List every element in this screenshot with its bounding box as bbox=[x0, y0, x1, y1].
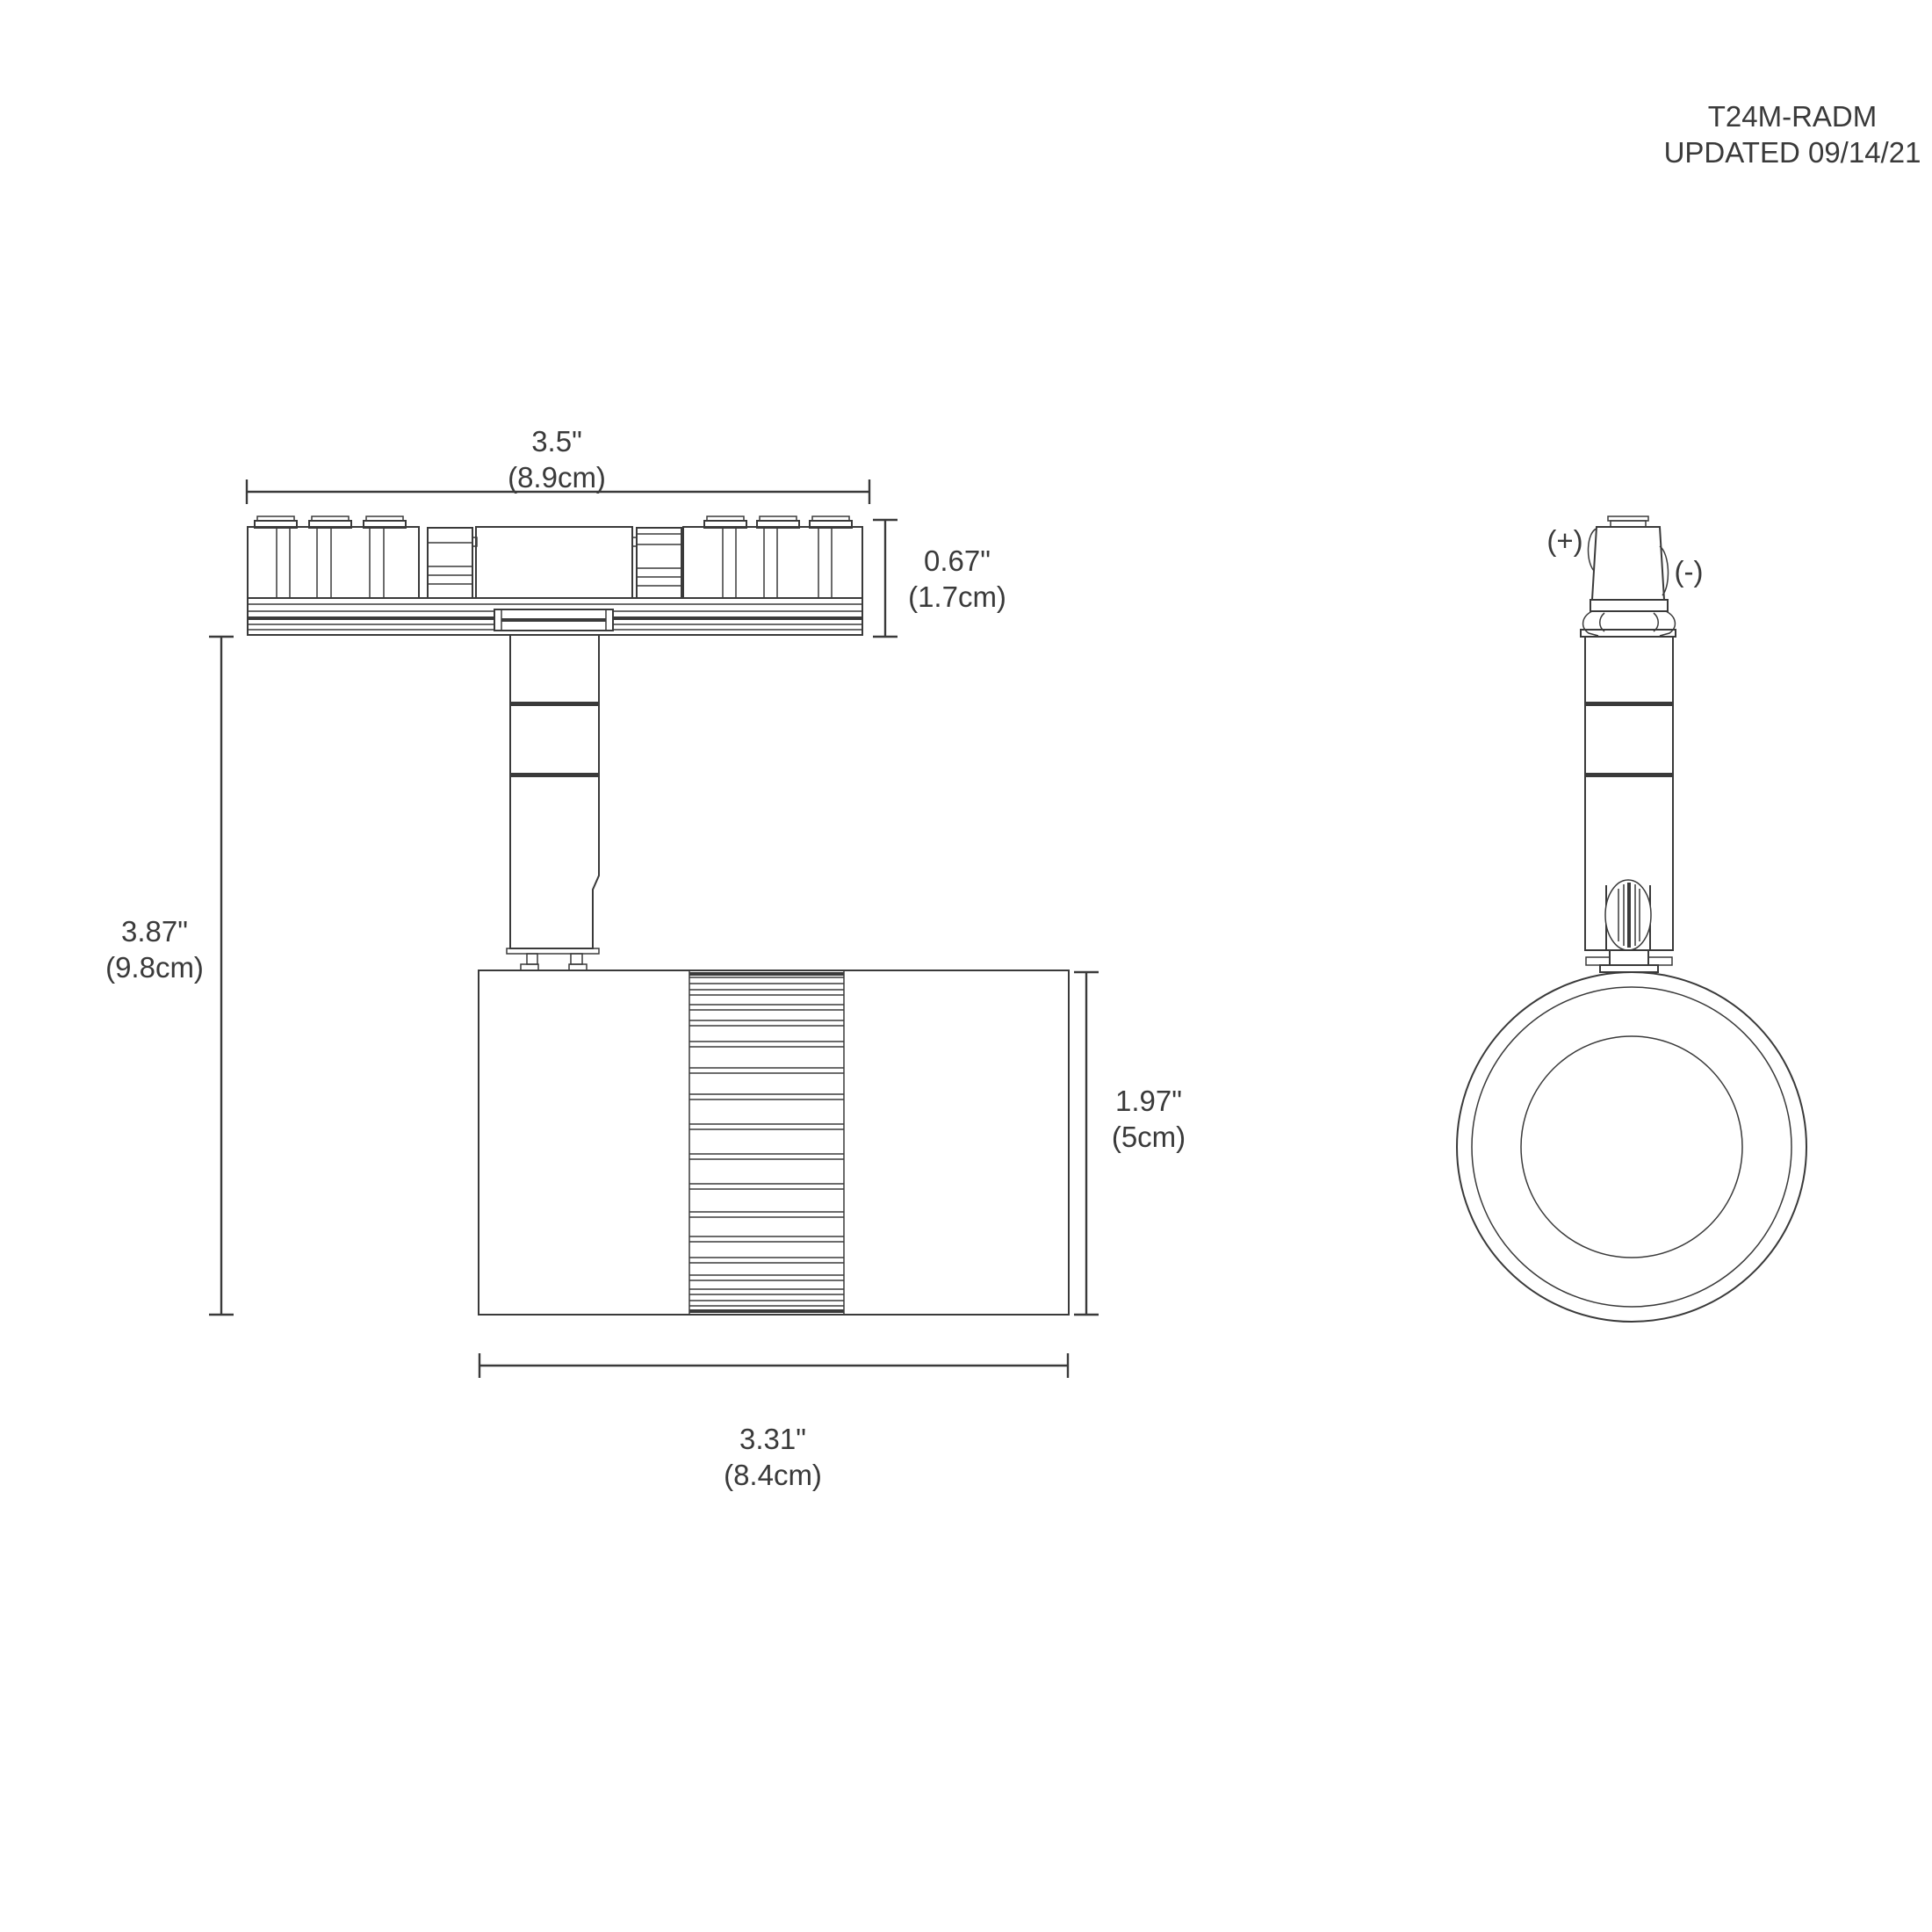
side-track-adapter bbox=[248, 516, 862, 635]
dim-overall-height-label: 3.87" (9.8cm) bbox=[105, 913, 204, 985]
dim-overall-height-line bbox=[209, 637, 234, 1315]
heatsink-fins bbox=[689, 974, 844, 1311]
dim-track-height-label: 0.67" (1.7cm) bbox=[908, 543, 1006, 615]
dim-track-width-label: 3.5" (8.9cm) bbox=[508, 423, 606, 495]
updated-date: UPDATED 09/14/21 bbox=[1664, 134, 1921, 170]
polarity-positive-label: (+) bbox=[1546, 525, 1582, 557]
dim-track-height-line bbox=[873, 520, 898, 637]
track-upper-blocks bbox=[248, 527, 862, 598]
front-track-connector bbox=[1581, 516, 1676, 637]
dim-head-width-label: 3.31" (8.4cm) bbox=[724, 1421, 822, 1493]
spec-sheet: T24M-RADM UPDATED 09/14/21 3.5" (8.9cm) … bbox=[0, 0, 1932, 1932]
dim-inches: 1.97" bbox=[1112, 1083, 1186, 1119]
dim-head-height-line bbox=[1074, 972, 1099, 1315]
dim-inches: 3.5" bbox=[508, 423, 606, 459]
dim-metric: (9.8cm) bbox=[105, 949, 204, 985]
front-yoke bbox=[1586, 950, 1672, 972]
polarity-negative-label: (-) bbox=[1675, 556, 1704, 588]
model-number: T24M-RADM bbox=[1664, 98, 1921, 134]
side-lamp-body bbox=[479, 970, 1069, 1315]
track-bottom-plate bbox=[248, 598, 862, 635]
dim-head-width-line bbox=[479, 1353, 1068, 1378]
track-ladder-right bbox=[632, 528, 681, 598]
front-adjust-knob bbox=[1605, 880, 1651, 950]
dim-head-height-label: 1.97" (5cm) bbox=[1112, 1083, 1186, 1155]
side-stem bbox=[507, 635, 599, 970]
dim-metric: (8.9cm) bbox=[508, 459, 606, 495]
front-view bbox=[1457, 516, 1806, 1322]
dim-metric: (5cm) bbox=[1112, 1119, 1186, 1155]
dim-inches: 3.31" bbox=[724, 1421, 822, 1457]
dim-metric: (8.4cm) bbox=[724, 1457, 822, 1493]
title-block: T24M-RADM UPDATED 09/14/21 bbox=[1664, 98, 1921, 170]
technical-drawing bbox=[0, 0, 1932, 1932]
front-lamp-face bbox=[1457, 972, 1806, 1322]
dim-inches: 0.67" bbox=[908, 543, 1006, 579]
dim-inches: 3.87" bbox=[105, 913, 204, 949]
track-ladder-left bbox=[428, 528, 477, 598]
dim-metric: (1.7cm) bbox=[908, 579, 1006, 615]
